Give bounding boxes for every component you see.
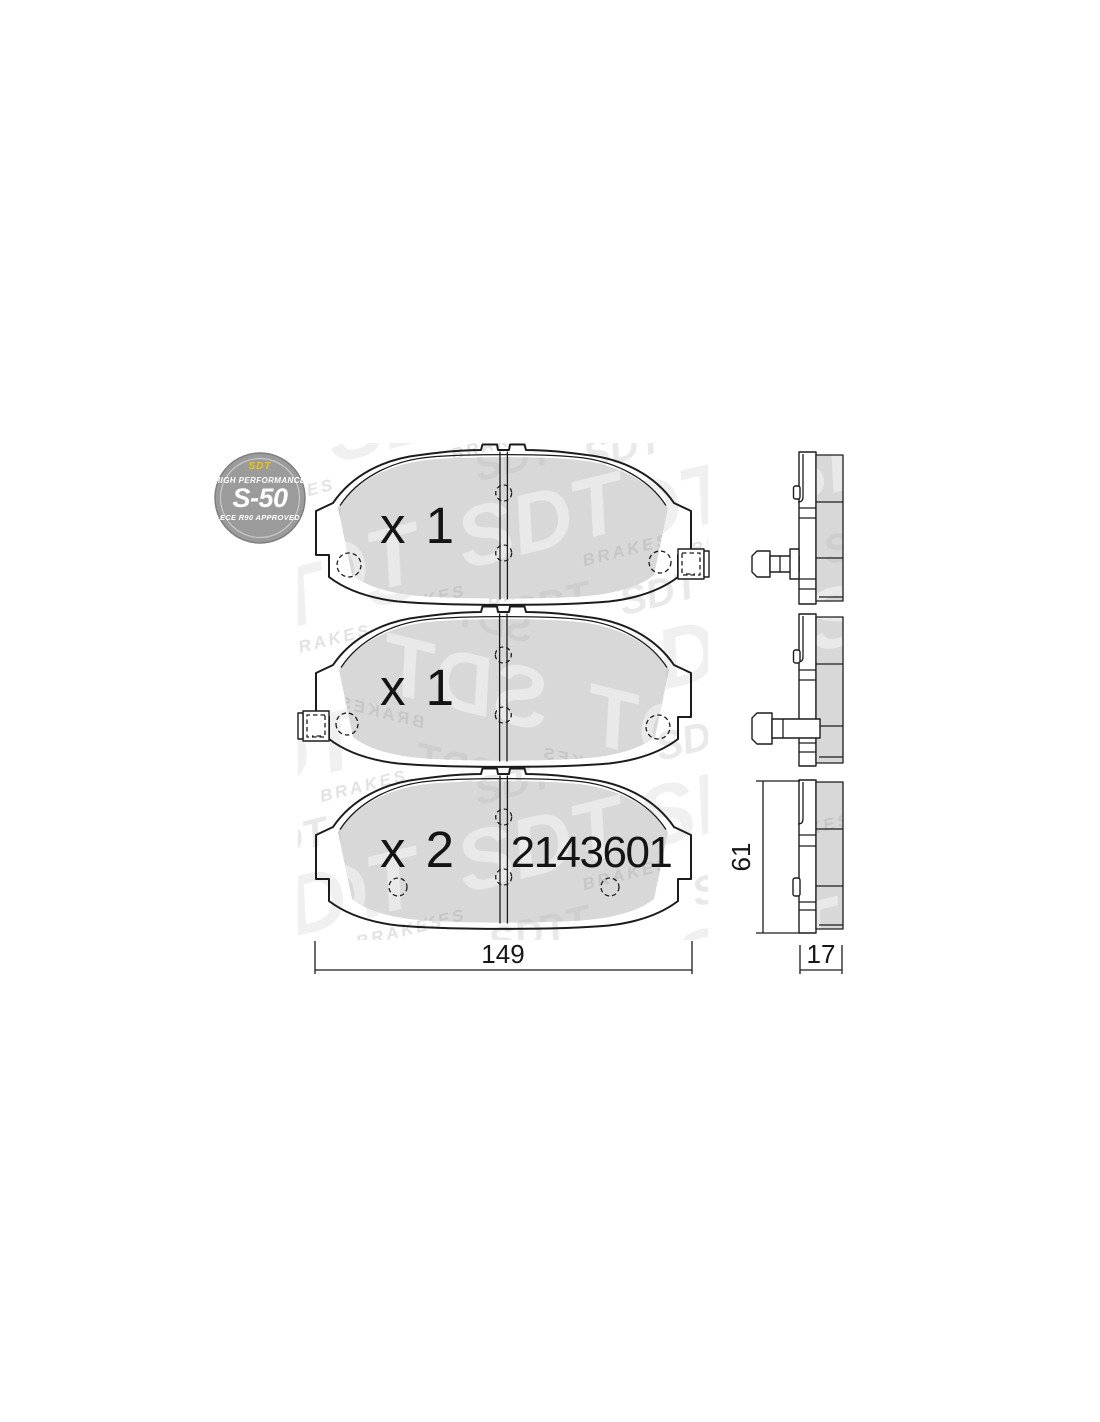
side-plate-tab bbox=[794, 650, 801, 663]
pad-quantity-label-1: x 1 bbox=[380, 497, 457, 554]
wear-sensor-plug bbox=[752, 713, 772, 744]
page: SDT BRAKES SDT SDT BRAKES SDT bbox=[0, 0, 1100, 1422]
pad-quantity-label-3: x 2 bbox=[380, 821, 457, 878]
badge-brand-text: SDT bbox=[249, 461, 272, 472]
part-number-label: 2143601 bbox=[511, 828, 672, 877]
side-backing-plate bbox=[799, 452, 816, 604]
side-friction-watermark bbox=[816, 617, 843, 763]
dimension-height: 61 bbox=[726, 781, 800, 933]
wear-sensor-plug bbox=[752, 551, 770, 577]
certification-badge: SDT HIGH PERFORMANCE S-50 ECE R90 APPROV… bbox=[214, 453, 306, 543]
pad-quantity-label-2: x 1 bbox=[380, 659, 457, 716]
side-friction-watermark bbox=[816, 455, 843, 601]
brake-pad-side-view-2 bbox=[752, 614, 843, 766]
brake-pad-side-view-1 bbox=[752, 452, 843, 604]
brake-pad-side-view-3 bbox=[793, 780, 843, 933]
wear-sensor-holder bbox=[790, 549, 799, 579]
side-plate-tab bbox=[794, 486, 801, 499]
brake-pad-technical-drawing: SDT BRAKES SDT SDT BRAKES SDT bbox=[0, 0, 1100, 1422]
side-plate-tab bbox=[793, 878, 800, 896]
badge-model-text: S-50 bbox=[232, 483, 288, 513]
dimension-length: 149 bbox=[315, 939, 692, 974]
wear-sensor-arm bbox=[772, 719, 820, 738]
dimension-length-value: 149 bbox=[481, 939, 524, 969]
badge-cert-text: ECE R90 APPROVED bbox=[220, 513, 300, 522]
dimension-thickness: 17 bbox=[800, 939, 842, 974]
dimension-thickness-value: 17 bbox=[807, 939, 836, 969]
side-friction-watermark bbox=[816, 782, 843, 929]
dimension-height-lines bbox=[756, 781, 800, 933]
dimension-height-value: 61 bbox=[726, 843, 756, 872]
